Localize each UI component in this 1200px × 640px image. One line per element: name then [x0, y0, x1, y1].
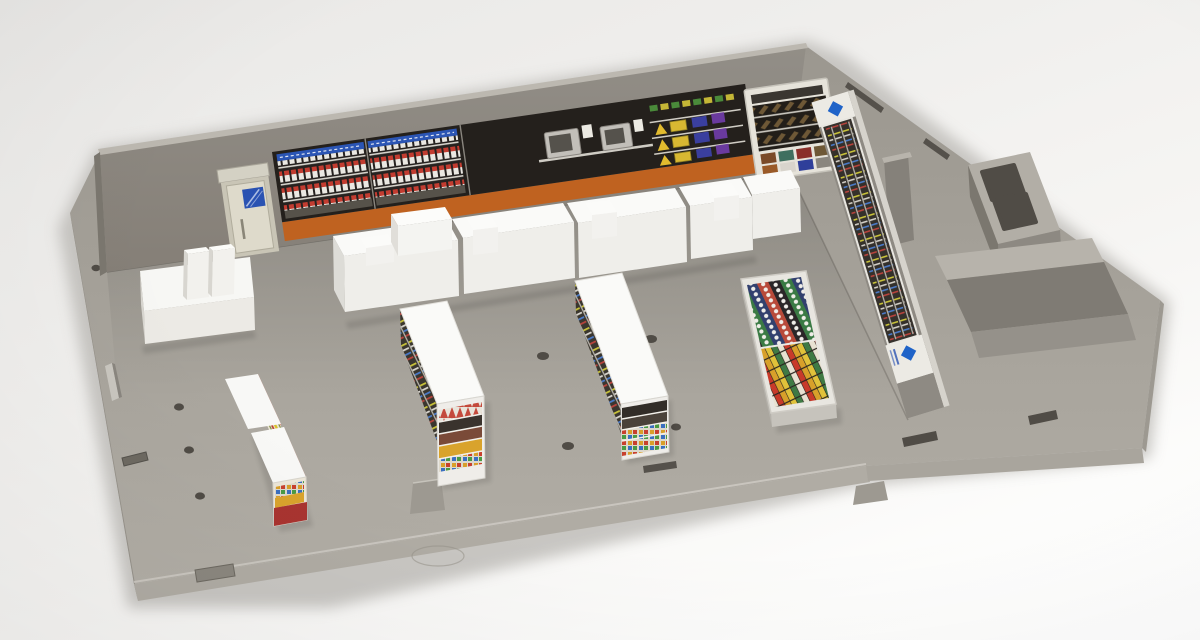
price-card: [581, 124, 593, 138]
gondola-end-face: [273, 477, 307, 526]
terminal: [208, 244, 235, 297]
gondola-end-face: [621, 396, 669, 460]
gondola-end-face: [437, 396, 485, 486]
model-kit-rendering: [0, 0, 1200, 640]
cigarette-rack-panel-2: [367, 128, 465, 205]
door-window: [242, 187, 265, 209]
counter-segment-2: [452, 203, 575, 294]
bin-opening: [994, 194, 1036, 229]
terminal: [183, 247, 210, 300]
microwave: [600, 123, 633, 151]
price-card: [633, 119, 644, 132]
counter-segment-3: [567, 188, 687, 278]
cigarette-rack-panel-1: [276, 142, 372, 219]
model-kit-photo: [0, 0, 1200, 640]
microwave: [544, 128, 581, 159]
register: [391, 207, 452, 256]
